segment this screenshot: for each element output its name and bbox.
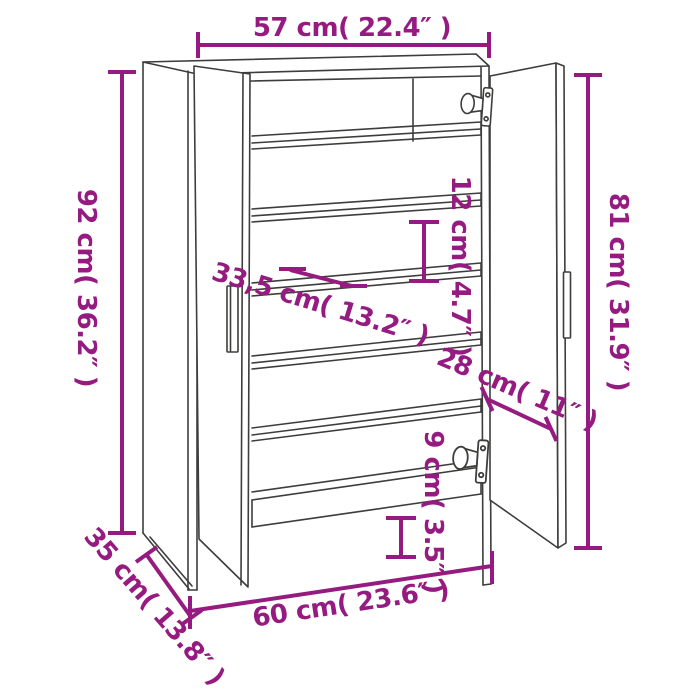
left-door-handle [227, 286, 238, 352]
dim-label-bottom-width: 60 cm( 23.6″ ) [251, 575, 452, 634]
dimension-diagram: 57 cm( 22.4″ ) 92 cm( 36.2″ ) 81 cm( 31.… [0, 0, 700, 700]
dim-door-height: 81 cm( 31.9″ ) [574, 75, 633, 548]
right-door-handle [564, 272, 571, 338]
top-rail-underside [250, 76, 481, 81]
dim-label-door-height: 81 cm( 31.9″ ) [603, 193, 633, 391]
dim-top-width: 57 cm( 22.4″ ) [198, 13, 489, 58]
hinge-icon-top [460, 86, 493, 126]
dim-label-overall-height: 92 cm( 36.2″ ) [71, 189, 101, 387]
dim-base-clearance: 9 cm( 3.5″ ) [386, 430, 448, 593]
dim-label-top-width: 57 cm( 22.4″ ) [253, 13, 451, 43]
cabinet-left-side-panel [143, 62, 197, 590]
dim-overall-height: 92 cm( 36.2″ ) [71, 72, 136, 533]
dim-label-compartment-height: 12 cm( 4.7″ ) [445, 176, 475, 357]
shelf-1 [252, 122, 481, 149]
dim-label-base-clearance: 9 cm( 3.5″ ) [418, 430, 448, 593]
diagram-canvas: 57 cm( 22.4″ ) 92 cm( 36.2″ ) 81 cm( 31.… [0, 0, 700, 700]
hinge-icon-bottom [452, 438, 489, 483]
right-door [490, 63, 571, 548]
left-door [194, 66, 250, 587]
